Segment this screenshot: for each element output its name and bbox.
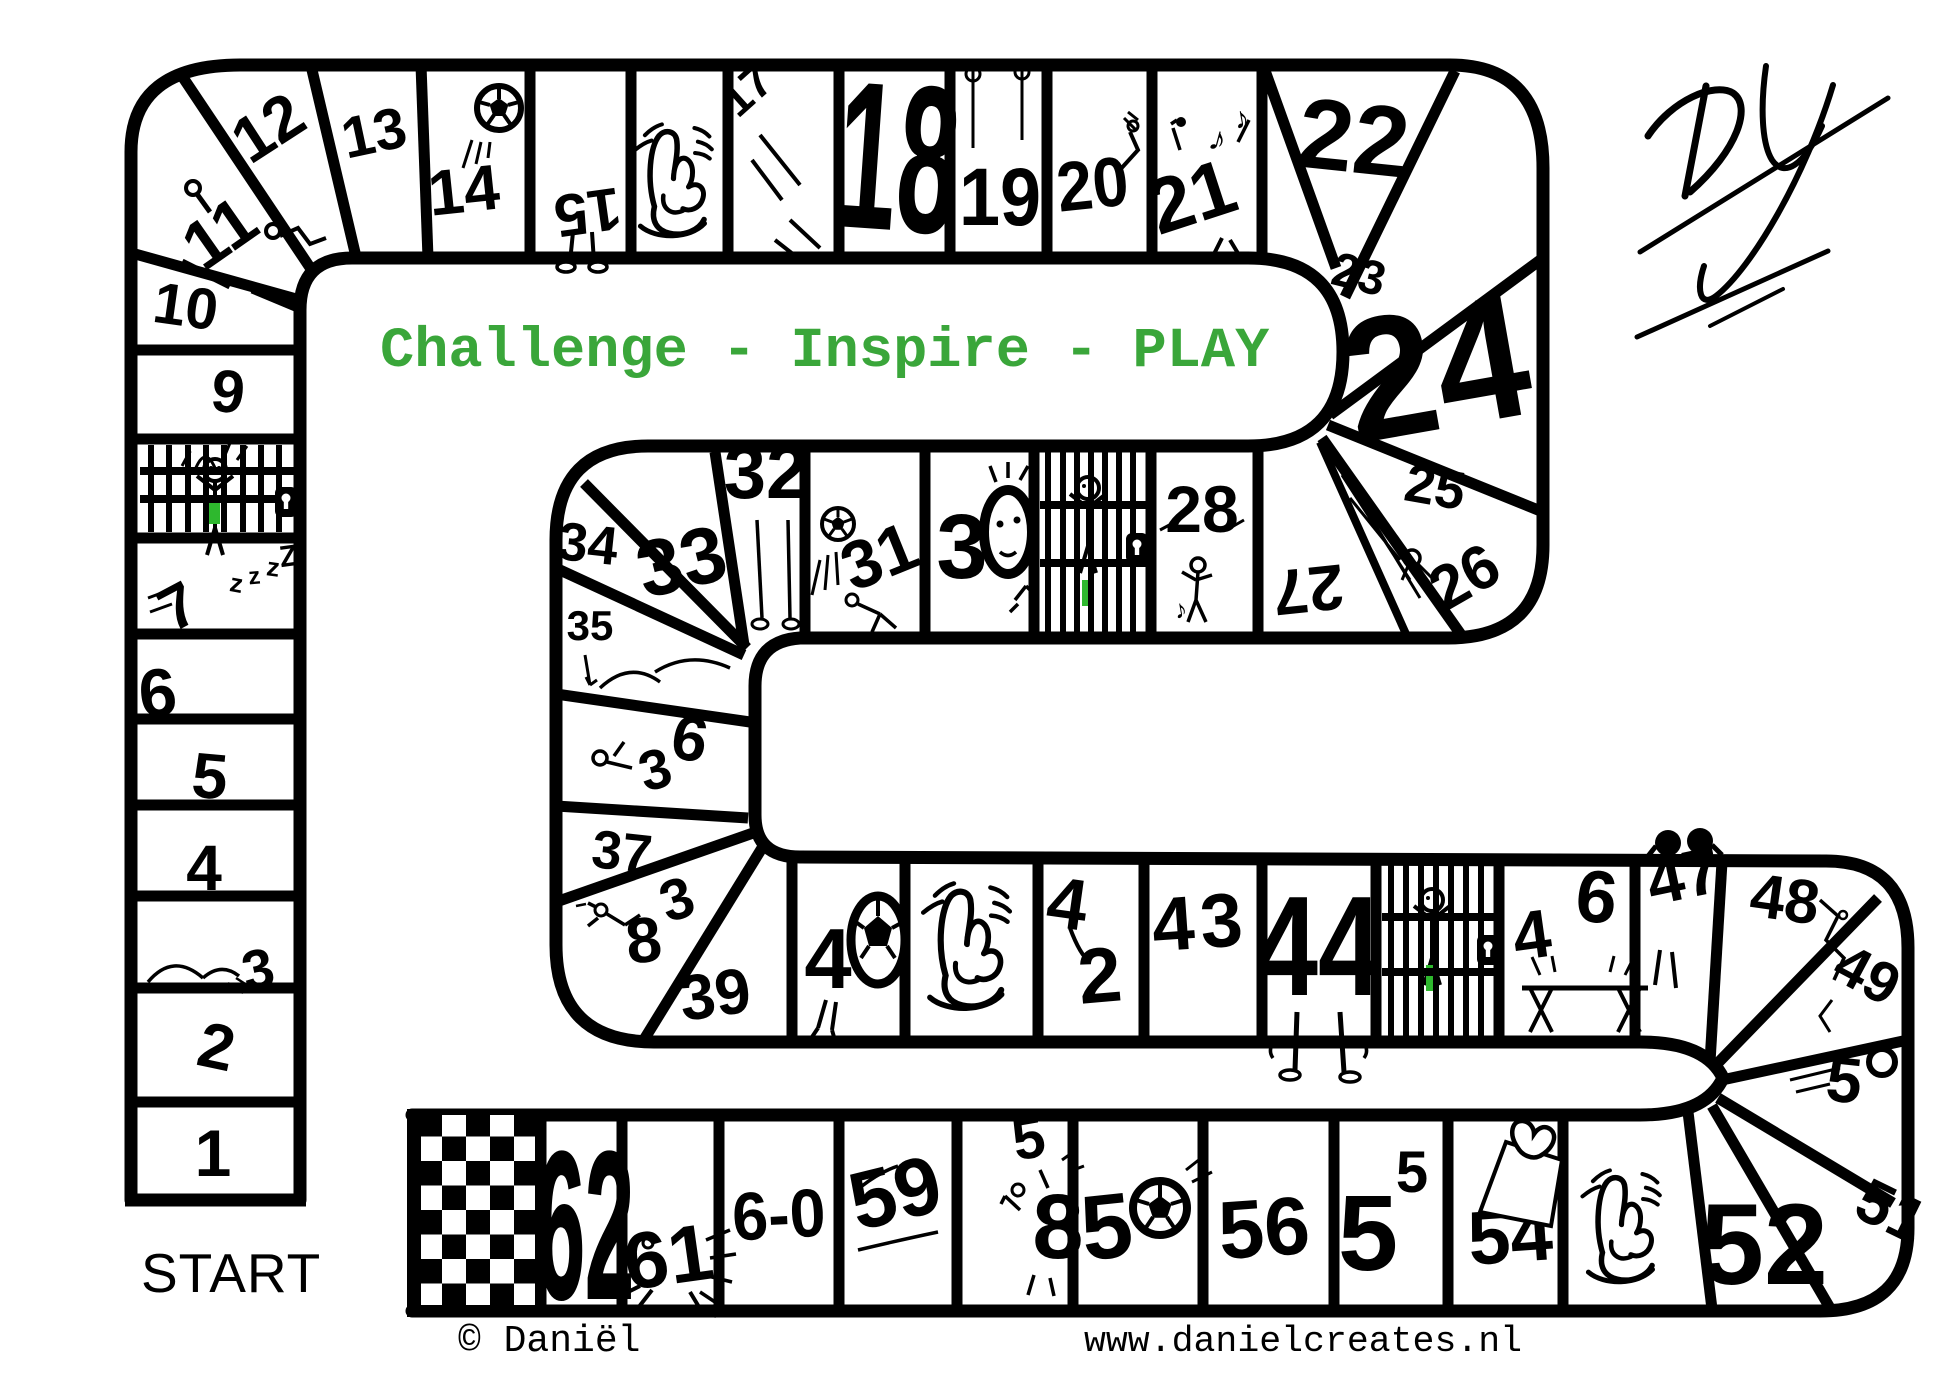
svg-text:43: 43 [1149, 877, 1251, 969]
svg-text:4: 4 [186, 832, 222, 904]
svg-text:6: 6 [135, 653, 181, 733]
svg-text:2: 2 [1074, 929, 1125, 1020]
svg-text:20: 20 [1053, 142, 1132, 227]
svg-text:3: 3 [936, 496, 987, 598]
svg-text:5: 5 [1076, 1174, 1138, 1281]
svg-text:37: 37 [589, 819, 655, 885]
svg-text:33: 33 [627, 507, 735, 615]
svg-text:25: 25 [1400, 453, 1470, 523]
svg-text:© Daniël: © Daniël [458, 1320, 640, 1363]
svg-text:1: 1 [195, 1116, 232, 1190]
svg-text:START: START [141, 1242, 321, 1304]
svg-text:44: 44 [1255, 868, 1381, 1026]
svg-text:27: 27 [1269, 550, 1347, 629]
svg-text:5: 5 [1338, 1172, 1398, 1293]
svg-text:♪: ♪ [1171, 593, 1189, 625]
svg-text:5: 5 [1396, 1140, 1428, 1205]
svg-text:2: 2 [192, 1008, 242, 1086]
svg-text:8: 8 [622, 902, 665, 977]
svg-text:48: 48 [1746, 861, 1824, 939]
svg-text:6: 6 [1572, 853, 1622, 940]
svg-text:5: 5 [189, 739, 231, 814]
svg-text:♪: ♪ [1205, 119, 1231, 160]
svg-text:56: 56 [1215, 1180, 1312, 1277]
svg-text:24: 24 [1328, 256, 1544, 481]
svg-text:Challenge - Inspire - PLAY: Challenge - Inspire - PLAY [380, 320, 1270, 384]
svg-text:6-0: 6-0 [730, 1175, 827, 1256]
svg-text:15: 15 [550, 174, 625, 250]
svg-text:34: 34 [555, 511, 621, 577]
svg-text:www.danielcreates.nl: www.danielcreates.nl [1084, 1321, 1522, 1362]
svg-text:8: 8 [1032, 1176, 1083, 1278]
svg-text:4: 4 [1508, 895, 1556, 976]
svg-text:13: 13 [336, 94, 413, 171]
svg-text:5: 5 [1823, 1042, 1866, 1117]
svg-text:4: 4 [804, 912, 851, 1007]
svg-text:28: 28 [1165, 472, 1238, 546]
svg-text:39: 39 [675, 954, 756, 1035]
svg-text:z: z [247, 563, 261, 591]
svg-text:52: 52 [1700, 1181, 1828, 1309]
svg-text:9: 9 [208, 357, 248, 427]
svg-text:62: 62 [536, 1109, 634, 1344]
svg-text:♪: ♪ [1231, 101, 1252, 136]
svg-text:z: z [228, 567, 246, 599]
svg-text:19: 19 [959, 150, 1041, 243]
svg-text:35: 35 [567, 602, 614, 649]
svg-text:22: 22 [1292, 77, 1414, 200]
svg-text:18: 18 [829, 37, 967, 280]
svg-text:32: 32 [724, 430, 809, 515]
